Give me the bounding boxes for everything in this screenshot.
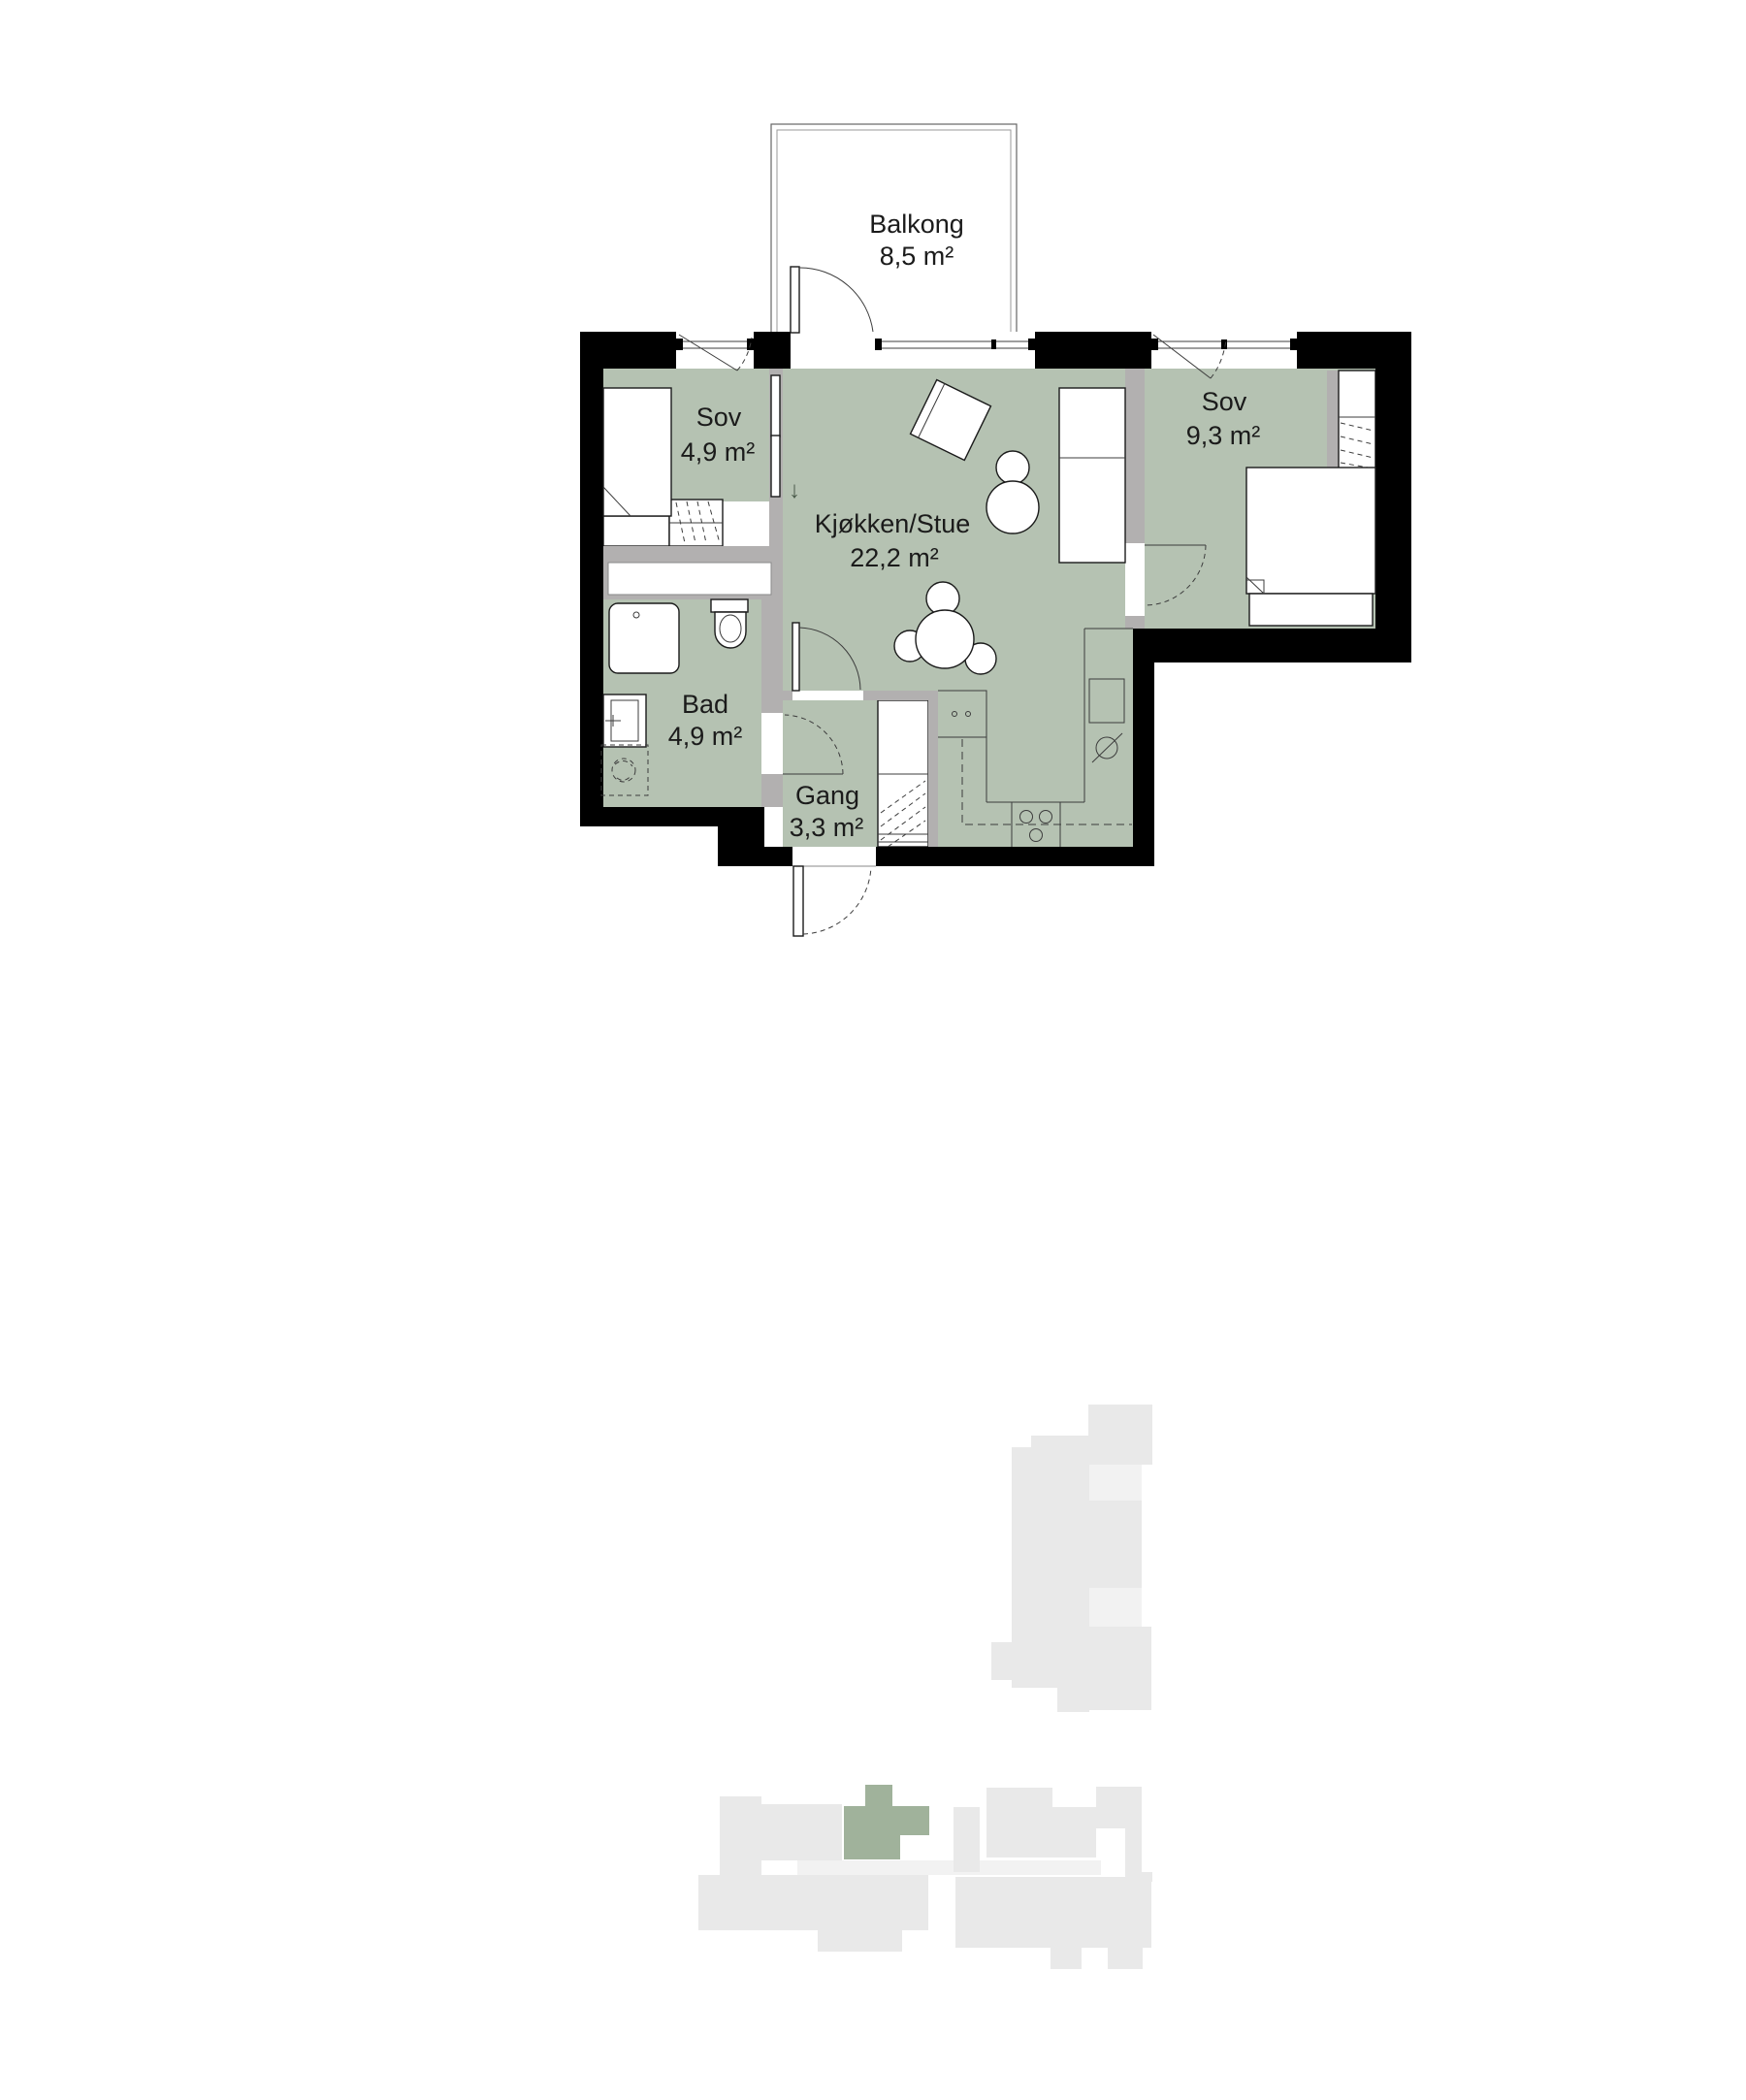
entry-door-icon bbox=[792, 847, 876, 936]
bed-icon bbox=[603, 388, 671, 516]
site-unit-highlight bbox=[844, 1785, 929, 1859]
window-icon bbox=[676, 332, 754, 371]
window-icon bbox=[875, 332, 1035, 369]
room-label-kitchen-living: Kjøkken/Stue bbox=[815, 509, 971, 538]
room-label-sov-large: Sov bbox=[1202, 387, 1247, 416]
shower-icon bbox=[609, 603, 679, 673]
sofa-icon bbox=[1059, 388, 1125, 563]
entry-direction-arrow-icon: ↓ bbox=[789, 477, 800, 503]
room-area-kitchen-living: 22,2 m² bbox=[850, 543, 939, 572]
floor-plan-drawing: Balkong 8,5 m² Sov 4,9 m² Kjøkken/Stue 2… bbox=[0, 0, 1746, 2100]
cabinet-icon bbox=[603, 516, 669, 546]
room-area-balkong: 8,5 m² bbox=[880, 242, 954, 271]
bed-icon bbox=[1246, 468, 1375, 626]
bathroom-window-icon bbox=[603, 695, 646, 747]
room-area-bad: 4,9 m² bbox=[668, 722, 743, 751]
room-label-balkong: Balkong bbox=[869, 210, 964, 239]
site-building-north bbox=[991, 1405, 1152, 1712]
room-area-sov-small: 4,9 m² bbox=[681, 437, 756, 467]
room-label-gang: Gang bbox=[795, 781, 859, 810]
room-area-sov-large: 9,3 m² bbox=[1186, 421, 1261, 450]
site-map bbox=[698, 1405, 1152, 1969]
room-label-sov-small: Sov bbox=[696, 403, 742, 432]
floor-plan-page: Balkong 8,5 m² Sov 4,9 m² Kjøkken/Stue 2… bbox=[0, 0, 1746, 2100]
hall-closet-icon bbox=[878, 700, 928, 852]
room-area-gang: 3,3 m² bbox=[790, 813, 864, 842]
wardrobe-icon bbox=[1339, 371, 1375, 470]
room-label-bad: Bad bbox=[682, 690, 728, 719]
balcony-door-opening bbox=[791, 332, 875, 369]
wardrobe-icon bbox=[669, 500, 723, 546]
site-building-east bbox=[954, 1787, 1152, 1969]
sliding-door-icon bbox=[771, 375, 780, 497]
